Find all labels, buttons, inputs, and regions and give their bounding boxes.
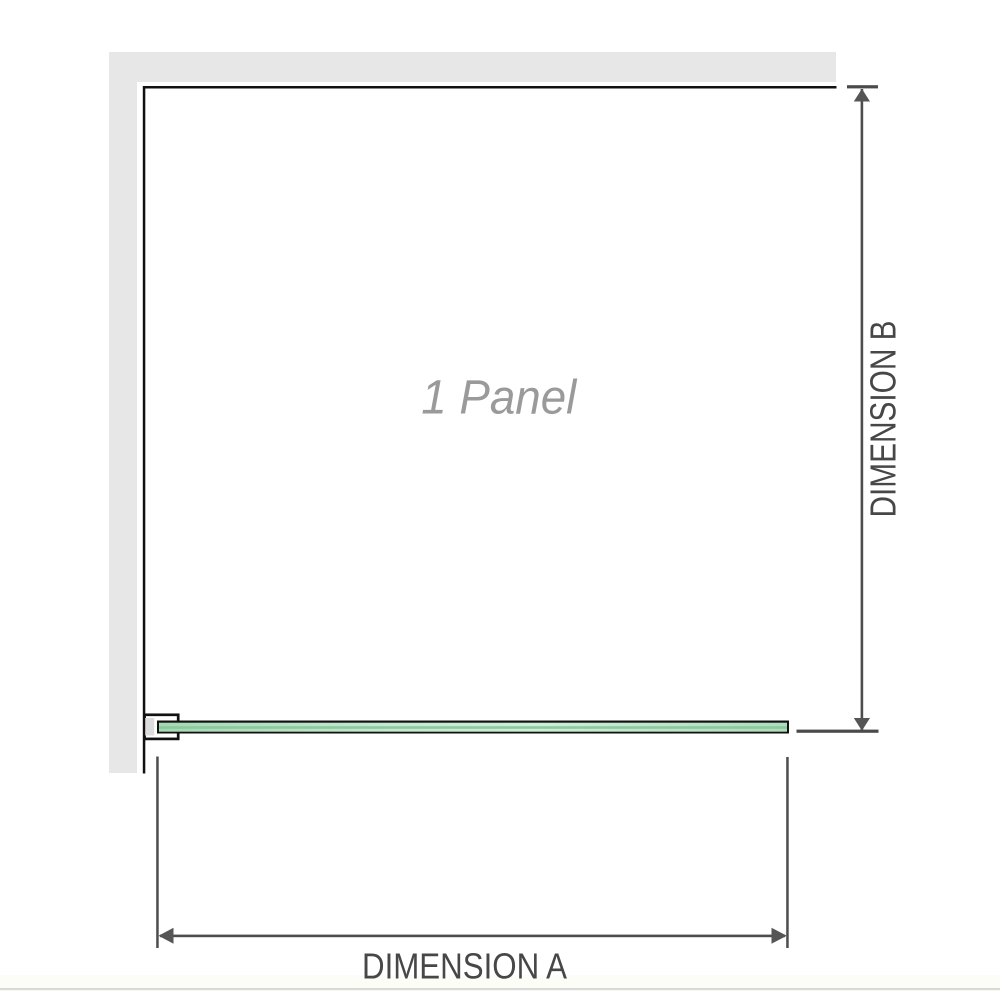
svg-text:DIMENSION A: DIMENSION A (362, 946, 567, 987)
svg-text:1 Panel: 1 Panel (421, 372, 577, 425)
svg-text:DIMENSION B: DIMENSION B (863, 321, 904, 518)
